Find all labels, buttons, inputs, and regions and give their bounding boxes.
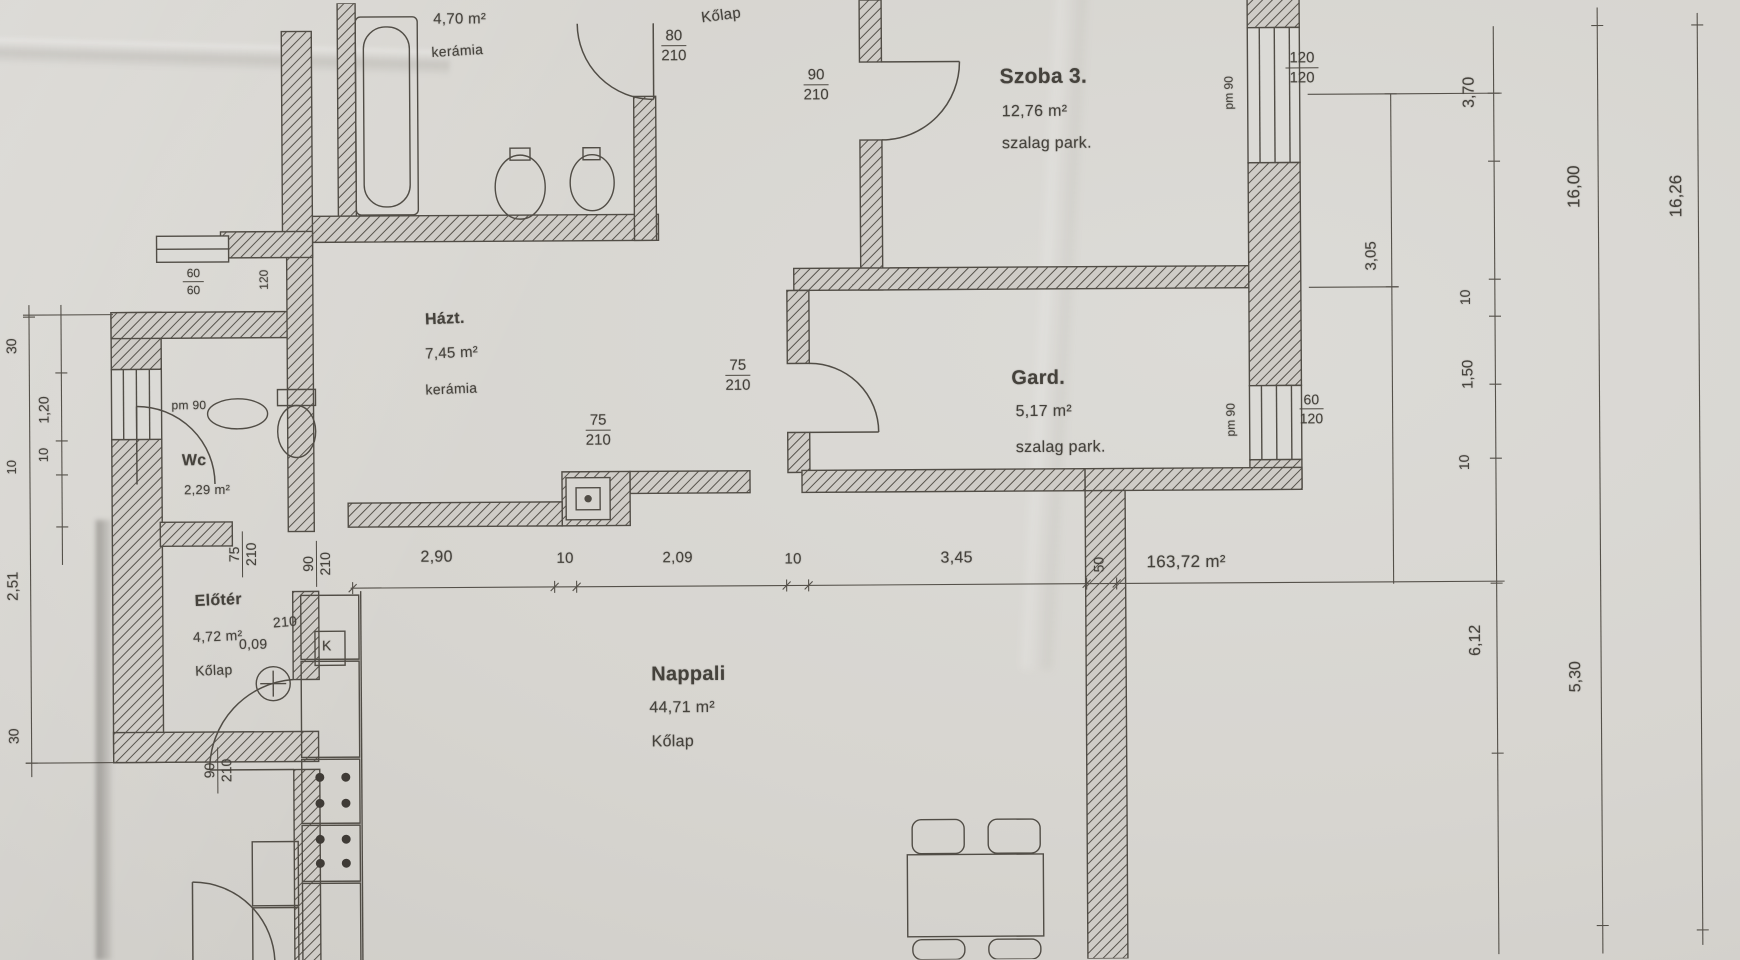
- dim-line-right-chain: [1493, 26, 1499, 954]
- door-90-210-label-kitchen: 90 210: [201, 747, 234, 793]
- nappali-floor-label: Kőlap: [652, 733, 695, 751]
- wall: [281, 31, 312, 235]
- door-width: 75: [226, 531, 243, 577]
- door-width: 75: [586, 412, 611, 431]
- door-90-210-label: 90 210: [803, 66, 828, 103]
- utility-boxes: [252, 841, 299, 960]
- door-height: 210: [243, 531, 259, 577]
- nappali-name-label: Nappali: [651, 663, 725, 686]
- eloter-area-label: 4,72 m²: [193, 627, 243, 645]
- dim-ticks-right: [1384, 25, 1709, 932]
- wall: [630, 471, 750, 494]
- wall: [160, 522, 232, 546]
- door-height: 210: [661, 46, 686, 64]
- door-80-210-label: 80 210: [661, 27, 686, 64]
- bath-area-label: 4,70 m²: [433, 10, 486, 27]
- dim-370: 3,70: [1460, 52, 1480, 132]
- window-60-120-label: 60 120: [1299, 391, 1323, 426]
- door-width: 80: [661, 27, 686, 46]
- szoba3-floor-label: szalag park.: [1002, 135, 1092, 154]
- door-szoba3: [881, 61, 959, 139]
- door-90-210-label-eloter: 90 210: [300, 541, 333, 587]
- niche-window: [156, 236, 228, 262]
- dim-209: 2,09: [662, 549, 693, 566]
- wall: [787, 290, 809, 363]
- dim-530: 5,30: [1567, 637, 1587, 717]
- kitchen-k-label: K: [322, 637, 332, 653]
- niche-dim: 60: [183, 266, 204, 282]
- wall: [286, 235, 314, 531]
- hazt-floor-label: kerámia: [425, 379, 478, 397]
- wall: [634, 96, 657, 240]
- door-75-210-label-b: 75 210: [725, 357, 750, 394]
- dim-10-b: 10: [784, 550, 801, 567]
- dim-290: 2,90: [420, 549, 452, 567]
- plan-linework: [0, 0, 1740, 960]
- exterior-wall: [1247, 0, 1299, 28]
- dim-009-label: 0,09: [239, 636, 268, 652]
- dim-345: 3,45: [940, 549, 972, 567]
- hazt-name-label: Házt.: [425, 310, 465, 330]
- eloter-name-label: Előtér: [194, 591, 242, 611]
- wc-sink: [207, 399, 267, 429]
- niche-dim: 60: [183, 282, 204, 297]
- hazt-area-label: 7,45 m²: [425, 343, 479, 362]
- floor-plan-drawing: 4,70 m² kerámia Kőlap Szoba 3. 12,76 m² …: [0, 0, 1740, 960]
- dim-30-b: 30: [5, 696, 25, 776]
- window-width: 120: [1285, 49, 1318, 68]
- wc-name-label: Wc: [182, 452, 207, 470]
- door-gard: [809, 363, 878, 432]
- wall: [859, 0, 881, 62]
- door-width: 90: [803, 66, 828, 85]
- wall: [348, 502, 562, 527]
- szoba3-name-label: Szoba 3.: [999, 65, 1087, 90]
- dim-line-1626: [1697, 13, 1703, 945]
- dim-line-305: [1391, 94, 1394, 584]
- exterior-wall: [1248, 162, 1301, 385]
- gard-floor-label: szalag park.: [1016, 439, 1106, 458]
- bathtub: [355, 17, 418, 215]
- dining-chairs: [912, 819, 1041, 960]
- dim-10-a: 10: [556, 550, 573, 567]
- window-width: 60: [1299, 391, 1323, 409]
- bathroom-sink: [495, 148, 545, 219]
- dim-wall-50: 50: [1090, 525, 1110, 605]
- door-height: 210: [804, 85, 829, 103]
- dim-1626: 16,26: [1666, 156, 1686, 236]
- szoba3-area-label: 12,76 m²: [1002, 103, 1068, 121]
- door-width: 90: [201, 747, 218, 793]
- wall: [794, 266, 1249, 291]
- nappali-area-label: 44,71 m²: [649, 699, 715, 717]
- dim-10-r2: 10: [1456, 422, 1476, 502]
- door-75-210-label-a: 75 210: [586, 412, 611, 449]
- dim-10-r1: 10: [1457, 257, 1477, 337]
- door-height: 210: [218, 747, 234, 793]
- eloter-floor-label: Kőlap: [195, 661, 233, 679]
- dim-line-left-inner: [61, 305, 63, 565]
- door-height: 210: [317, 541, 333, 587]
- wall: [802, 469, 1085, 493]
- dim-251: 2,51: [4, 546, 24, 626]
- door-210-extra-label: 210: [272, 613, 297, 631]
- paper-edge-shadow: [96, 520, 112, 960]
- dim-150: 1,50: [1459, 334, 1479, 414]
- sill-height-label-3: pm 90: [171, 398, 206, 412]
- niche-60-60-label: 60 60: [183, 266, 205, 297]
- dim-10-l2: 10: [4, 427, 24, 507]
- wall: [337, 3, 356, 216]
- dining-table: [907, 854, 1043, 937]
- window-height: 120: [1285, 68, 1318, 86]
- door-width: 90: [300, 541, 317, 587]
- door-kitchen: [192, 882, 274, 960]
- kitchen-sink: [256, 667, 290, 701]
- window-height: 120: [1300, 409, 1324, 426]
- door-height: 210: [586, 431, 611, 449]
- dim-612: 6,12: [1467, 600, 1487, 680]
- dim-305: 3,05: [1362, 216, 1382, 296]
- floor-drain: [566, 478, 610, 520]
- dim-line-left-outer: [29, 305, 32, 777]
- door-75-210-label-wc: 75 210: [226, 531, 259, 577]
- door-bathroom: [577, 23, 653, 99]
- window-120-120-label: 120 120: [1285, 49, 1318, 86]
- scanned-floor-plan: 4,70 m² kerámia Kőlap Szoba 3. 12,76 m² …: [0, 0, 1740, 960]
- dim-1600: 16,00: [1564, 147, 1584, 227]
- door-height: 210: [725, 376, 750, 394]
- wall: [298, 214, 658, 242]
- sill-height-label-1: pm 90: [1221, 53, 1241, 133]
- wall: [788, 432, 810, 472]
- dim-10-l1: 10: [36, 415, 56, 495]
- total-area-label: 163,72 m²: [1146, 552, 1225, 572]
- wall: [111, 311, 311, 338]
- door-width: 75: [725, 357, 750, 376]
- wall: [1085, 467, 1302, 490]
- wc-area-label: 2,29 m²: [184, 482, 230, 497]
- dim-line-1600: [1597, 8, 1603, 954]
- sill-height-label-2: pm 90: [1223, 380, 1243, 460]
- gard-name-label: Gard.: [1011, 367, 1065, 390]
- bathroom-sink-2: [570, 148, 614, 211]
- window-60x120: [1249, 385, 1301, 459]
- window-120x120: [1247, 27, 1300, 162]
- dim-30-a: 30: [3, 306, 23, 386]
- exterior-wall: [112, 439, 164, 762]
- gard-area-label: 5,17 m²: [1016, 403, 1072, 421]
- walls: [109, 0, 1305, 960]
- bath-floor-label: kerámia: [431, 41, 484, 60]
- niche-120-label: 120: [257, 240, 277, 320]
